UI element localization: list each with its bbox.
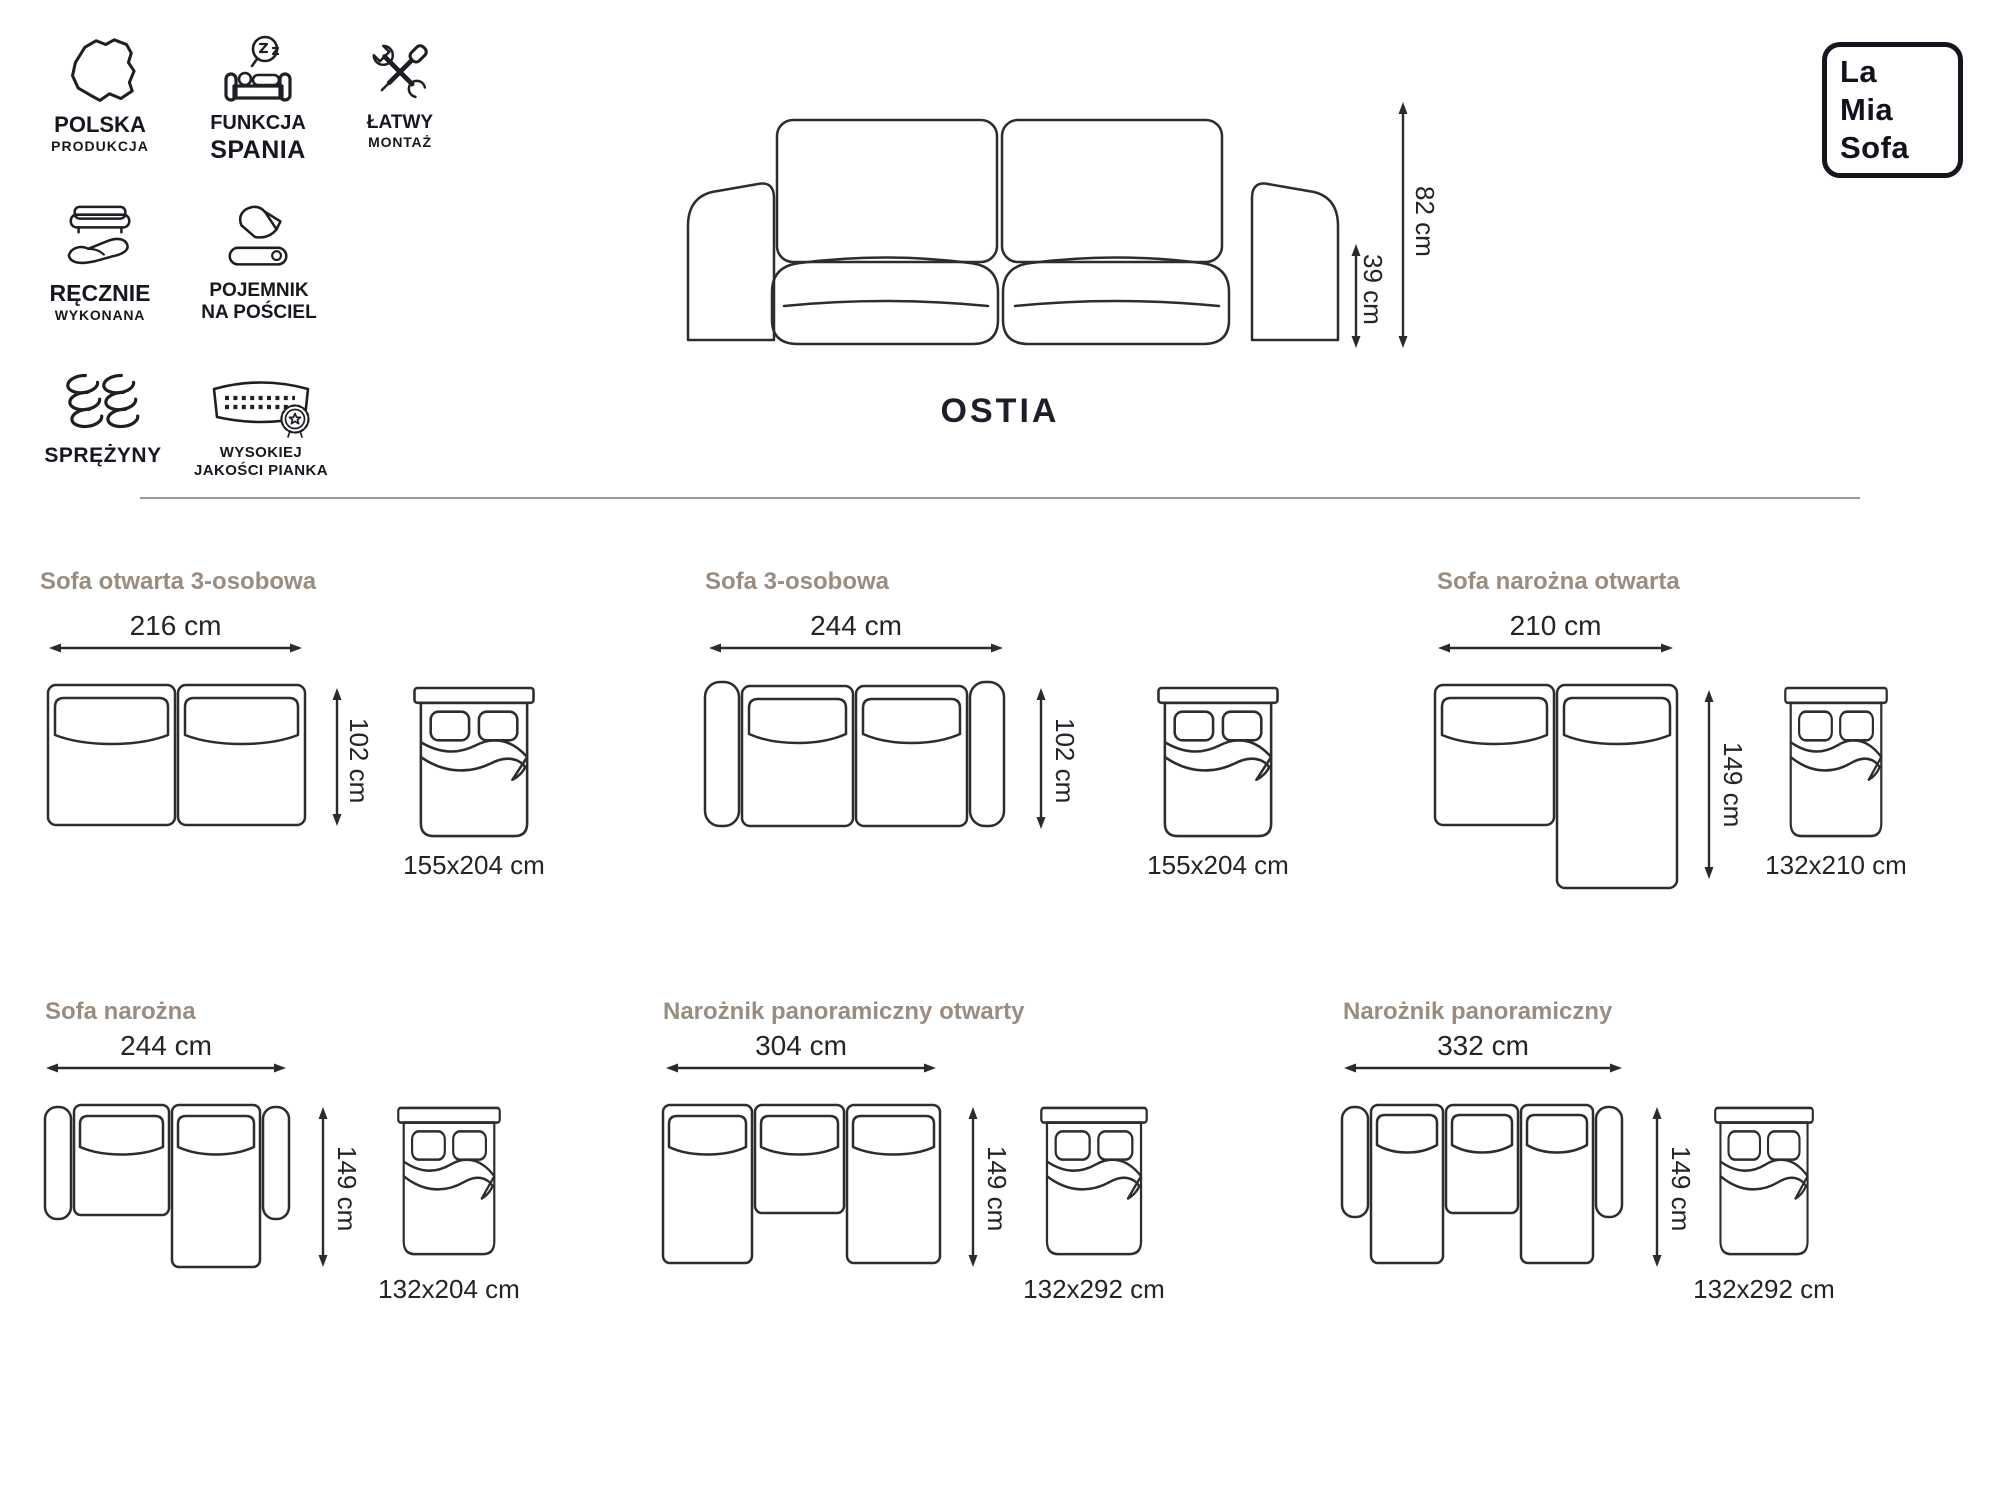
- bed-size-label: 132x210 cm: [1726, 850, 1946, 881]
- springs-icon: [65, 364, 141, 444]
- bed-size-label: 132x292 cm: [1654, 1274, 1874, 1305]
- poland-map-icon: [62, 32, 138, 112]
- foam-mattress-badge-icon: [209, 364, 313, 444]
- feature-bedding-storage: POJEMNIK NA POŚCIEL: [178, 200, 340, 325]
- feature-poland-production: POLSKA PRODUKCJA: [35, 32, 165, 154]
- bedding-stack-icon: [220, 200, 298, 280]
- sleeping-sofa-icon: [218, 32, 298, 112]
- width-arrow: [1437, 641, 1674, 655]
- config-sofa-3-osobowa: Sofa 3-osobowa 244 cm 102 cm 155x204 cm: [700, 565, 1260, 895]
- feature-sublabel: NA POŚCIEL: [201, 302, 316, 324]
- feature-springs: SPRĘŻYNY: [35, 364, 171, 469]
- bed-top-view-icon: [1784, 686, 1888, 840]
- tools-icon: [362, 32, 438, 112]
- bed-top-view-icon: [1714, 1106, 1814, 1258]
- feature-label: ŁATWY: [367, 112, 433, 134]
- config-depth-label: 149 cm: [1717, 742, 1748, 827]
- config-depth-label: 149 cm: [331, 1146, 362, 1231]
- feature-sublabel: SPANIA: [210, 136, 306, 166]
- config-title: Sofa narożna: [45, 998, 196, 1026]
- config-title: Sofa narożna otwarta: [1437, 568, 1680, 596]
- sofa-top-view: [46, 683, 307, 827]
- width-arrow: [45, 1061, 287, 1075]
- depth-arrow: [1650, 1106, 1664, 1268]
- feature-high-quality-foam: WYSOKIEJ JAKOŚCI PIANKA: [175, 364, 347, 479]
- sofa-top-view: [703, 680, 1006, 832]
- config-naroznik-panoramiczny-otwarty: Narożnik panoramiczny otwarty 304 cm 149…: [660, 995, 1240, 1335]
- config-depth-label: 149 cm: [1665, 1146, 1696, 1231]
- feature-sublabel: MONTAŻ: [368, 134, 432, 151]
- width-arrow: [708, 641, 1004, 655]
- brand-logo: La Mia Sofa: [1822, 42, 1963, 178]
- feature-sublabel: WYKONANA: [55, 307, 145, 324]
- config-depth-label: 149 cm: [981, 1146, 1012, 1231]
- width-arrow: [48, 641, 303, 655]
- width-arrow: [665, 1061, 937, 1075]
- feature-easy-assembly: ŁATWY MONTAŻ: [338, 32, 462, 151]
- depth-arrow: [316, 1106, 330, 1268]
- config-depth-label: 102 cm: [343, 718, 374, 803]
- config-width-label: 332 cm: [1343, 1030, 1623, 1062]
- depth-arrow: [1702, 689, 1716, 880]
- config-sofa-narozna: Sofa narożna 244 cm 149 cm 132x204 cm: [40, 995, 620, 1335]
- config-sofa-otwarta-3-osobowa: Sofa otwarta 3-osobowa 216 cm 102 cm 155…: [40, 565, 600, 895]
- depth-arrow: [966, 1106, 980, 1268]
- config-width-label: 210 cm: [1437, 610, 1674, 642]
- sofa-top-view: [43, 1103, 291, 1271]
- logo-line3: Sofa: [1840, 129, 1958, 167]
- config-title: Sofa otwarta 3-osobowa: [40, 568, 316, 596]
- config-width-label: 244 cm: [708, 610, 1004, 642]
- feature-handmade: RĘCZNIE WYKONANA: [35, 200, 165, 324]
- feature-sublabel: JAKOŚCI PIANKA: [194, 462, 328, 480]
- sofa-top-view: [661, 1103, 942, 1269]
- product-name: OSTIA: [860, 392, 1140, 431]
- sofa-top-view: [1433, 683, 1679, 890]
- bed-top-view-icon: [1040, 1106, 1148, 1258]
- config-width-label: 304 cm: [665, 1030, 937, 1062]
- config-naroznik-panoramiczny: Narożnik panoramiczny 332 cm 149 cm 132x…: [1338, 995, 1938, 1335]
- sofa-front-view-drawing: [678, 92, 1346, 354]
- depth-arrow: [1034, 687, 1048, 830]
- feature-label: POJEMNIK: [209, 280, 308, 302]
- bed-size-label: 155x204 cm: [364, 850, 584, 881]
- logo-line1: La: [1840, 53, 1958, 91]
- bed-top-view-icon: [1157, 686, 1279, 840]
- feature-label: RĘCZNIE: [50, 280, 151, 307]
- config-title: Narożnik panoramiczny otwarty: [663, 998, 1024, 1026]
- bed-top-view-icon: [413, 686, 535, 840]
- config-depth-label: 102 cm: [1049, 718, 1080, 803]
- bed-size-label: 132x292 cm: [984, 1274, 1204, 1305]
- feature-label: SPRĘŻYNY: [44, 444, 161, 469]
- bed-top-view-icon: [397, 1106, 501, 1258]
- config-title: Narożnik panoramiczny: [1343, 998, 1612, 1026]
- hand-holding-sofa-icon: [61, 200, 139, 280]
- config-width-label: 216 cm: [48, 610, 303, 642]
- feature-label: POLSKA: [54, 112, 146, 138]
- total-height-arrow: [1396, 101, 1410, 349]
- config-width-label: 244 cm: [45, 1030, 287, 1062]
- bed-size-label: 132x204 cm: [339, 1274, 559, 1305]
- config-title: Sofa 3-osobowa: [705, 568, 889, 596]
- depth-arrow: [330, 687, 344, 827]
- feature-sleep-function: FUNKCJA SPANIA: [188, 32, 328, 165]
- logo-line2: Mia: [1840, 91, 1958, 129]
- separator-line: [140, 497, 1860, 499]
- bed-size-label: 155x204 cm: [1108, 850, 1328, 881]
- feature-label: FUNKCJA: [210, 112, 306, 136]
- width-arrow: [1343, 1061, 1623, 1075]
- config-sofa-narozna-otwarta: Sofa narożna otwarta 210 cm 149 cm 132x2…: [1432, 565, 1992, 895]
- total-height-label: 82 cm: [1409, 186, 1440, 257]
- feature-sublabel: PRODUKCJA: [51, 138, 149, 155]
- feature-label: WYSOKIEJ: [220, 444, 302, 462]
- seat-height-label: 39 cm: [1357, 254, 1388, 325]
- sofa-top-view: [1340, 1103, 1624, 1269]
- sofa-spec-sheet: POLSKA PRODUKCJA FUNKCJA SPANIA: [0, 0, 2000, 1500]
